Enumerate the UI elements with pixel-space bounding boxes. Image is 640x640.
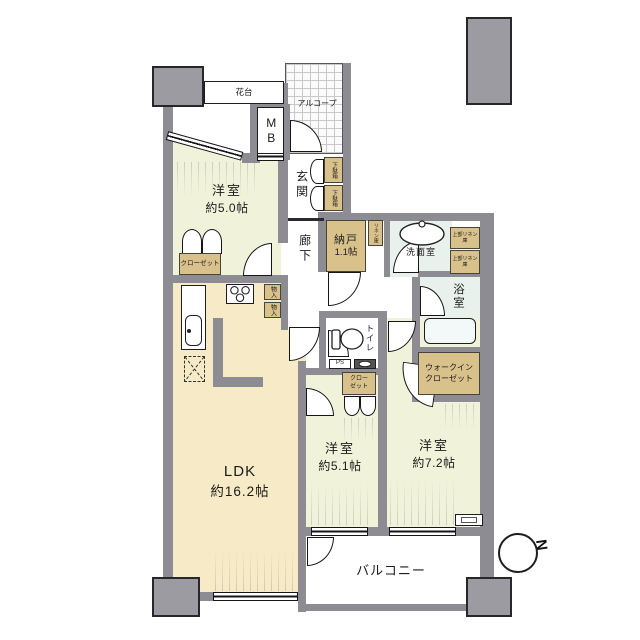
equipment-inner — [461, 517, 477, 523]
pipe-space-label: PS — [336, 360, 344, 368]
floor-plan: 花台 MB 下駄箱 下駄箱 納戸 1.1帖 リネン庫 上部リネン 庫 上部リネン… — [0, 0, 640, 640]
room-name: 洋室 — [212, 183, 242, 198]
pillar — [466, 577, 512, 617]
closet-western-5-0: クローゼット — [179, 253, 221, 275]
balcony-label: バルコニー — [351, 563, 431, 580]
linen-storage-label: リネン庫 — [372, 223, 379, 243]
shoe-box: 下駄箱 — [324, 157, 343, 183]
wall — [278, 155, 288, 243]
washbasin-icon — [396, 219, 448, 247]
bathroom-label: 浴室 — [450, 283, 465, 310]
pillar — [466, 17, 512, 105]
linen-storage: リネン庫 — [368, 220, 383, 246]
wall — [302, 604, 478, 611]
walk-in-closet-label: ウォークイン — [425, 363, 473, 373]
meter-box: MB — [257, 107, 284, 154]
compass-north-label: N — [532, 538, 550, 551]
corridor-label: 廊下 — [296, 234, 312, 264]
bathroom-label-text: 浴室 — [452, 283, 464, 310]
alcove-label-text: アルコープ — [297, 99, 336, 108]
wall — [281, 283, 288, 330]
storage-room: 納戸 1.1帖 — [326, 220, 366, 272]
wall — [283, 104, 290, 160]
closet-door-arc — [202, 229, 222, 254]
closet-door-arc — [360, 396, 376, 416]
washroom-label: 洗面室 — [394, 247, 448, 259]
closet-door-arc — [344, 396, 360, 416]
western-5-0-label: 洋室 約5.0帖 — [186, 183, 268, 217]
wall — [319, 311, 387, 318]
refrigerator-space — [184, 356, 205, 382]
wall — [163, 275, 288, 283]
flower-stand: 花台 — [204, 81, 284, 104]
storage-room-size: 1.1帖 — [335, 247, 358, 259]
window — [389, 527, 456, 536]
upper-linen-storage: 上部リネン 庫 — [450, 250, 480, 274]
room-size: 約7.2帖 — [412, 456, 455, 470]
room-size: 約16.2帖 — [210, 484, 269, 499]
wall — [213, 377, 263, 387]
flower-stand-label: 花台 — [235, 87, 252, 98]
closet-label: クロー — [350, 376, 368, 384]
upper-linen-storage: 上部リネン 庫 — [450, 227, 480, 249]
genkan-step — [288, 218, 324, 221]
wall — [343, 63, 351, 221]
wall — [163, 98, 173, 601]
storage-small-label: 物入 — [270, 286, 276, 298]
shoe-box-door-arc — [310, 159, 324, 184]
alcove-label: アルコープ — [291, 99, 343, 109]
entrance-label: 玄関 — [293, 170, 309, 200]
pipe-space: PS — [329, 359, 351, 369]
closet-label: クローゼット — [181, 260, 220, 268]
stove — [226, 284, 254, 304]
wall — [318, 221, 326, 272]
hand-washer-icon — [358, 361, 372, 367]
western-5-1-label: 洋室 約5.1帖 — [308, 441, 372, 475]
door-arc-ldk — [289, 327, 320, 361]
room-size: 約5.1帖 — [318, 459, 361, 473]
door-arc-balcony — [307, 537, 334, 566]
shoe-box-door-arc — [310, 186, 324, 211]
shoe-box: 下駄箱 — [324, 185, 343, 211]
ldk-label: LDK 約16.2帖 — [194, 462, 286, 501]
equipment-box — [455, 514, 483, 526]
compass: N — [492, 526, 550, 578]
refrigerator-cross-icon — [185, 357, 204, 381]
walk-in-closet: ウォークイン クローゼット — [418, 352, 480, 395]
washroom-label-text: 洗面室 — [406, 247, 436, 257]
shading — [215, 547, 300, 591]
pillar — [152, 66, 204, 107]
stove-burners-icon — [227, 284, 253, 304]
entrance-label-text: 玄関 — [295, 170, 309, 200]
upper-linen-label: 庫 — [462, 238, 467, 245]
pillar — [152, 577, 200, 617]
shoe-box-label: 下駄箱 — [330, 162, 337, 179]
wall — [298, 361, 306, 536]
walk-in-closet-label: クローゼット — [425, 374, 473, 384]
corridor-label-text: 廊下 — [298, 234, 312, 264]
storage-small: 物入 — [264, 302, 281, 318]
window — [213, 592, 298, 601]
wall — [378, 311, 387, 527]
western-7-2-label: 洋室 約7.2帖 — [401, 438, 467, 472]
room-name: 洋室 — [419, 438, 449, 453]
shading — [390, 475, 458, 525]
storage-room-label: 納戸 — [334, 233, 358, 247]
shading — [445, 404, 478, 432]
window — [311, 527, 368, 536]
room-size: 約5.0帖 — [205, 201, 248, 215]
faucet-dot — [187, 329, 191, 333]
hand-washer — [354, 359, 376, 369]
shading — [311, 480, 369, 525]
storage-small-label: 物入 — [270, 304, 276, 316]
room-name: LDK — [224, 463, 256, 480]
room-name: 洋室 — [325, 441, 355, 456]
storage-small: 物入 — [264, 284, 281, 300]
toilet-label: トイレ — [364, 324, 375, 353]
toilet-label-text: トイレ — [365, 324, 375, 353]
upper-linen-label: 庫 — [462, 262, 467, 269]
wall — [319, 318, 326, 375]
wall — [298, 536, 306, 612]
closet-western-5-1: クロー ゼット — [342, 372, 376, 395]
toilet-icon — [331, 323, 365, 355]
meter-box-label: MB — [263, 116, 279, 146]
balcony-label-text: バルコニー — [356, 563, 426, 578]
wall — [384, 218, 390, 277]
bathtub — [424, 318, 476, 344]
shoe-box-label: 下駄箱 — [330, 190, 337, 207]
closet-label: ゼット — [350, 384, 368, 392]
closet-door-arc — [182, 229, 202, 254]
